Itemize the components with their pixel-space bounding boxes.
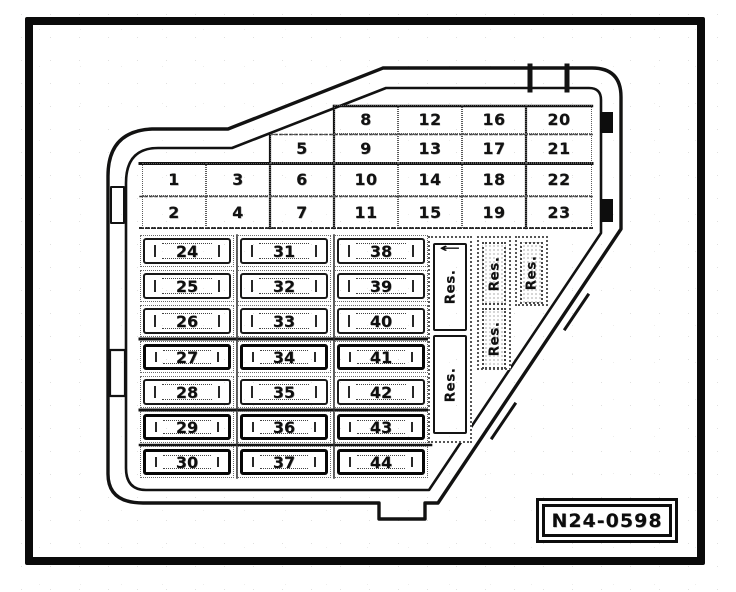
reserve-label: Res.	[442, 367, 458, 402]
fuse-position-number: 15	[418, 203, 441, 222]
fuse-body: 29	[143, 414, 231, 440]
fuse-position-cell: 15	[398, 196, 462, 228]
fuse-cell: 35	[237, 376, 331, 408]
fuse-position-cell: 22	[526, 163, 592, 196]
fuse-cell: 25	[140, 270, 234, 302]
fuse-number: 32	[242, 275, 326, 297]
fuse-cell: 34	[237, 341, 331, 373]
fuse-position-number: 1	[168, 170, 180, 189]
fuse-position-number: 7	[296, 203, 308, 222]
fuse-cell: 31	[237, 235, 331, 267]
fuse-cell: 27	[140, 341, 234, 373]
fuse-position-cell: 3	[206, 163, 270, 196]
fuse-body: 25	[143, 273, 231, 299]
fuse-cell: 39	[334, 270, 428, 302]
fuse-position-number: 5	[296, 139, 308, 158]
fuse-position-cell: 18	[462, 163, 526, 196]
fuse-position-cell: 17	[462, 134, 526, 163]
fuse-body: 26	[143, 308, 231, 334]
diagonal-notch	[492, 404, 515, 438]
fuse-position-cell: 19	[462, 196, 526, 228]
fuse-number: 25	[145, 275, 229, 297]
fuse-number: 42	[339, 381, 423, 403]
fuse-position-number: 9	[360, 139, 372, 158]
fuse-cell: 28	[140, 376, 234, 408]
fuse-number: 31	[242, 240, 326, 262]
reserve-slot: Res.	[433, 335, 467, 434]
fuse-position-number: 21	[547, 139, 570, 158]
fuse-body: 39	[337, 273, 425, 299]
fuse-number: 41	[340, 347, 422, 367]
fuse-position-number: 11	[354, 203, 377, 222]
fuse-cell: 26	[140, 305, 234, 337]
fuse-number: 33	[242, 310, 326, 332]
fuse-cell: 30	[140, 446, 234, 478]
reserve-label: Res.	[486, 256, 502, 291]
fuse-position-number: 16	[482, 110, 505, 129]
fuse-position-number: 6	[296, 170, 308, 189]
fuse-position-number: 14	[418, 170, 441, 189]
reserve-strip: Res.Res.	[477, 236, 511, 370]
right-edge-key	[600, 199, 613, 222]
part-number-plate: N24-0598	[536, 498, 678, 543]
fuse-number: 38	[339, 240, 423, 262]
fuse-cell: 29	[140, 411, 234, 443]
fuse-body: 44	[337, 449, 425, 475]
fuse-number: 36	[243, 417, 325, 437]
fuse-position-cell: 16	[462, 105, 526, 134]
fuse-cell: 41	[334, 341, 428, 373]
fuse-cell: 38	[334, 235, 428, 267]
fuse-position-cell: 2	[142, 196, 206, 228]
fuse-position-cell: 8	[334, 105, 398, 134]
fuse-body: 40	[337, 308, 425, 334]
fuse-position-cell: 14	[398, 163, 462, 196]
fuse-body: 35	[240, 379, 328, 405]
fuse-cell: 33	[237, 305, 331, 337]
left-latch-tab	[111, 187, 124, 223]
reserve-slot: ←Res.	[433, 243, 467, 331]
fuse-cell: 44	[334, 446, 428, 478]
reserve-label: Res.	[486, 321, 502, 356]
fuse-position-cell: 20	[526, 105, 592, 134]
fuse-body: 36	[240, 414, 328, 440]
fuse-number: 35	[242, 381, 326, 403]
fuse-position-cell: 7	[270, 196, 334, 228]
fuse-position-cell: 6	[270, 163, 334, 196]
fuse-cell: 42	[334, 376, 428, 408]
fuse-number: 43	[340, 417, 422, 437]
fuse-cell: 32	[237, 270, 331, 302]
fuse-number: 28	[145, 381, 229, 403]
fuse-position-cell: 13	[398, 134, 462, 163]
reserve-strip: Res.	[515, 236, 548, 306]
fuse-position-number: 19	[482, 203, 505, 222]
fuse-number: 34	[243, 347, 325, 367]
fuse-body: 41	[337, 344, 425, 370]
fuse-number: 39	[339, 275, 423, 297]
fuse-body: 24	[143, 238, 231, 264]
reserve-slot: Res.	[482, 242, 506, 305]
fuse-number: 30	[146, 452, 228, 472]
fuse-position-cell: 1	[142, 163, 206, 196]
fuse-cell: 37	[237, 446, 331, 478]
fuse-number: 37	[243, 452, 325, 472]
reserve-label: Res.	[442, 270, 458, 305]
fuse-number: 24	[145, 240, 229, 262]
fuse-position-cell: 12	[398, 105, 462, 134]
fuse-body: 28	[143, 379, 231, 405]
fuse-position-number: 22	[547, 170, 570, 189]
fuse-number: 27	[146, 347, 228, 367]
fuse-position-number: 2	[168, 203, 180, 222]
diagonal-notch	[565, 295, 588, 329]
fuse-position-number: 18	[482, 170, 505, 189]
fuse-position-number: 8	[360, 110, 372, 129]
fuse-number: 44	[340, 452, 422, 472]
fuse-body: 34	[240, 344, 328, 370]
fuse-position-number: 13	[418, 139, 441, 158]
fuse-cell: 36	[237, 411, 331, 443]
fuse-body: 30	[143, 449, 231, 475]
fuse-position-cell: 21	[526, 134, 592, 163]
reserve-strip: ←Res.Res.	[428, 236, 472, 443]
left-arrow-icon: ←	[419, 243, 482, 255]
reserve-slot: Res.	[520, 242, 543, 304]
fuse-panel-diagram: 8121620591317211361014182224711151923 24…	[0, 0, 736, 592]
fuse-position-number: 10	[354, 170, 377, 189]
fuse-position-cell: 10	[334, 163, 398, 196]
fuse-body: 31	[240, 238, 328, 264]
fuse-position-number: 4	[232, 203, 244, 222]
right-edge-key	[600, 112, 613, 133]
fuse-position-cell: 4	[206, 196, 270, 228]
part-number-text: N24-0598	[551, 510, 662, 532]
fuse-cell: 24	[140, 235, 234, 267]
fuse-body: 43	[337, 414, 425, 440]
fuse-position-number: 17	[482, 139, 505, 158]
reserve-slot: Res.	[482, 308, 506, 369]
fuse-body: 38	[337, 238, 425, 264]
fuse-body: 37	[240, 449, 328, 475]
fuse-position-number: 3	[232, 170, 244, 189]
fuse-position-cell: 11	[334, 196, 398, 228]
fuse-number: 29	[146, 417, 228, 437]
fuse-position-number: 20	[547, 110, 570, 129]
fuse-body: 32	[240, 273, 328, 299]
fuse-position-number: 23	[547, 203, 570, 222]
fuse-body: 42	[337, 379, 425, 405]
fuse-number: 40	[339, 310, 423, 332]
fuse-position-cell: 5	[270, 134, 334, 163]
left-latch-tab	[110, 350, 125, 396]
fuse-cell: 43	[334, 411, 428, 443]
fuse-position-cell: 9	[334, 134, 398, 163]
fuse-cell: 40	[334, 305, 428, 337]
fuse-number: 26	[145, 310, 229, 332]
fuse-position-number: 12	[418, 110, 441, 129]
fuse-body: 27	[143, 344, 231, 370]
fuse-body: 33	[240, 308, 328, 334]
reserve-label: Res.	[524, 256, 540, 291]
fuse-position-cell: 23	[526, 196, 592, 228]
